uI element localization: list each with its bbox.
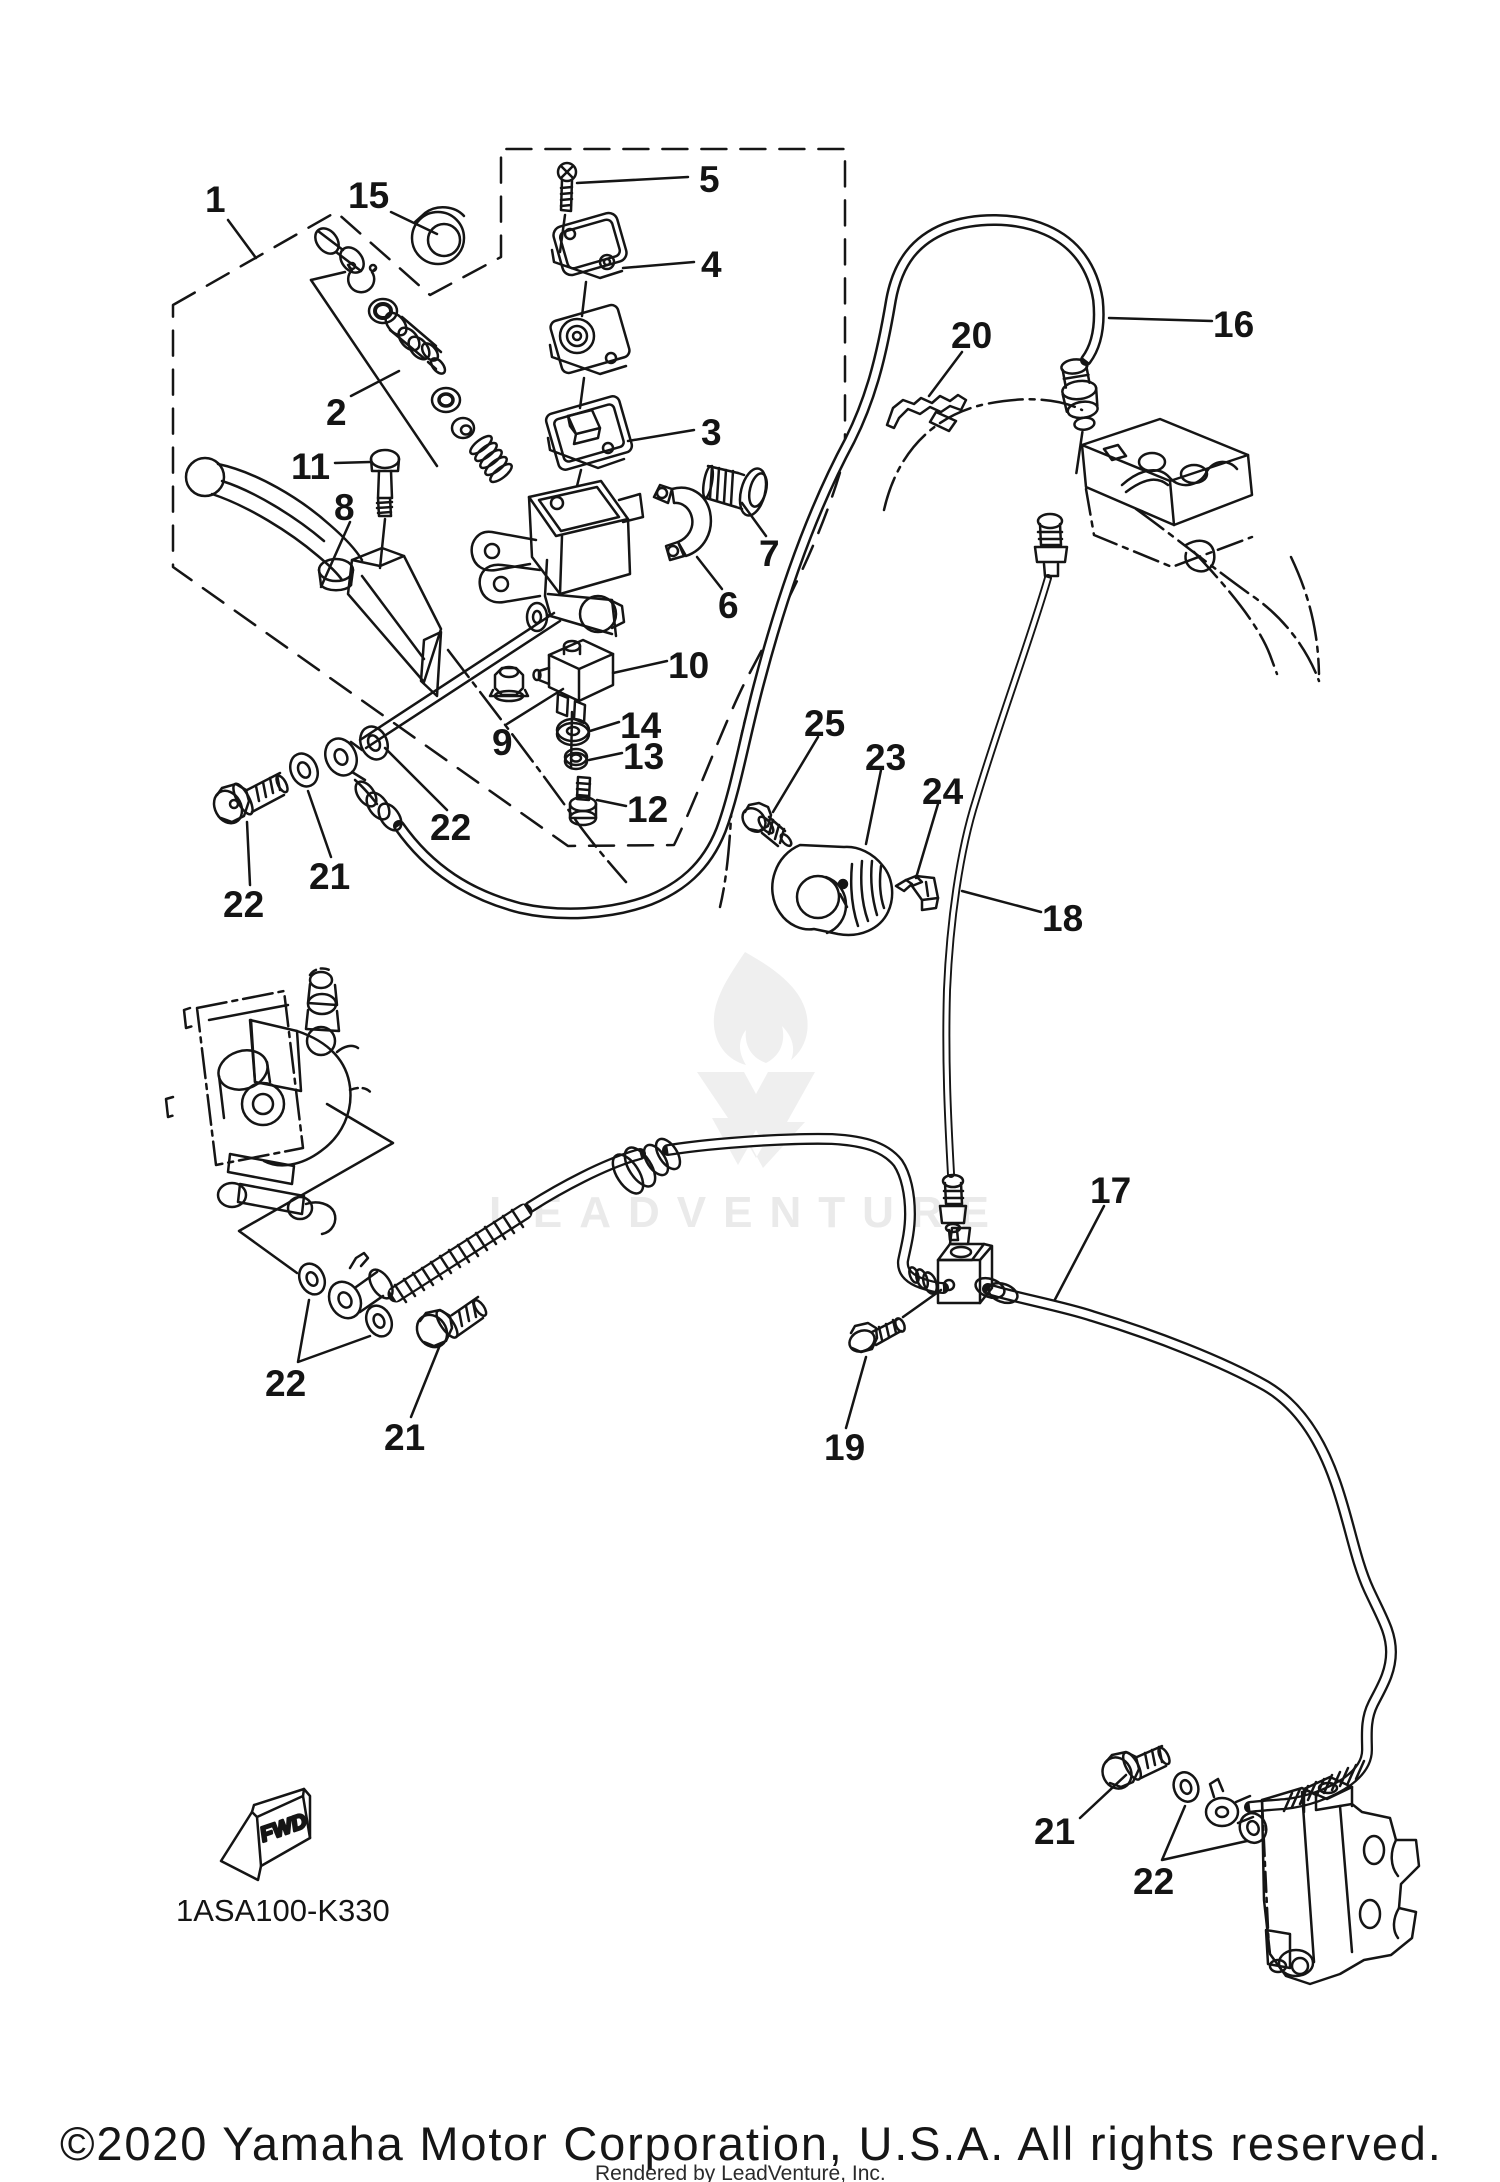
svg-text:22: 22 <box>223 884 264 925</box>
svg-text:18: 18 <box>1042 898 1083 939</box>
svg-text:13: 13 <box>623 736 664 777</box>
svg-text:24: 24 <box>922 771 964 812</box>
svg-text:7: 7 <box>759 533 780 574</box>
svg-text:Rendered by LeadVenture, Inc.: Rendered by LeadVenture, Inc. <box>595 2162 886 2182</box>
svg-text:20: 20 <box>951 315 992 356</box>
svg-text:3: 3 <box>701 412 722 453</box>
svg-text:22: 22 <box>265 1363 306 1404</box>
svg-text:22: 22 <box>1133 1861 1174 1902</box>
svg-text:21: 21 <box>309 856 350 897</box>
svg-text:21: 21 <box>1034 1811 1075 1852</box>
svg-text:FWD: FWD <box>257 1809 310 1846</box>
svg-text:15: 15 <box>348 175 389 216</box>
svg-text:LEADVENTURE: LEADVENTURE <box>489 1188 1006 1237</box>
svg-text:4: 4 <box>701 244 722 285</box>
svg-text:21: 21 <box>384 1417 425 1458</box>
svg-text:19: 19 <box>824 1427 865 1468</box>
svg-text:22: 22 <box>430 807 471 848</box>
svg-text:1: 1 <box>205 179 226 220</box>
svg-text:23: 23 <box>865 737 906 778</box>
svg-text:11: 11 <box>291 446 330 487</box>
svg-text:6: 6 <box>718 585 739 626</box>
svg-text:12: 12 <box>627 789 668 830</box>
svg-text:16: 16 <box>1213 304 1254 345</box>
svg-text:5: 5 <box>699 159 720 200</box>
svg-text:9: 9 <box>492 722 513 763</box>
svg-text:25: 25 <box>804 703 845 744</box>
svg-text:1ASA100-K330: 1ASA100-K330 <box>176 1893 390 1928</box>
svg-text:10: 10 <box>668 645 709 686</box>
svg-text:2: 2 <box>326 392 347 433</box>
svg-text:17: 17 <box>1090 1170 1131 1211</box>
svg-text:8: 8 <box>334 487 355 528</box>
